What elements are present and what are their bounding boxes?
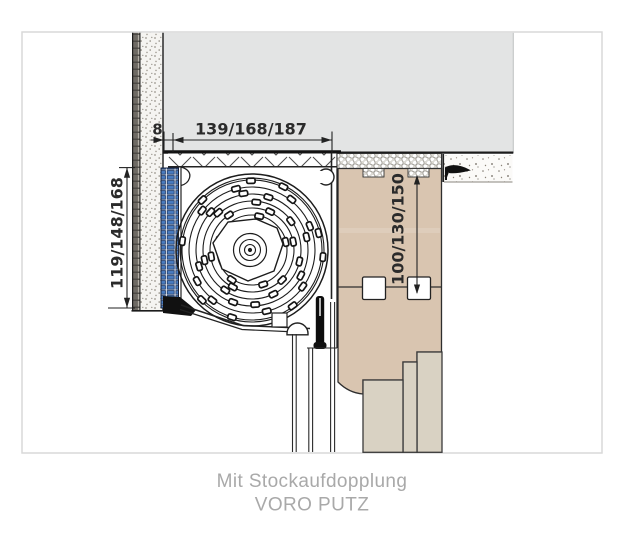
- end-clip-gap: [316, 171, 325, 183]
- anchor-band: [337, 154, 442, 169]
- plaster-reveal: [443, 154, 512, 182]
- caption-line-1: Mit Stockaufdopplung: [217, 471, 408, 492]
- technical-drawing: 8 139/168/187 119/148/168 100/130/150 Mi…: [0, 0, 624, 539]
- caption: Mit Stockaufdopplung VORO PUTZ: [217, 471, 408, 516]
- figure-root: 8 139/168/187 119/148/168 100/130/150 Mi…: [0, 0, 624, 539]
- anchor-notch: [408, 169, 429, 178]
- dimension-label-top: 139/168/187: [195, 120, 307, 139]
- dimension-label-left: 119/148/168: [108, 177, 127, 289]
- connector-block: [363, 277, 386, 300]
- caption-line-2: VORO PUTZ: [255, 495, 369, 516]
- dimension-label-offset: 8: [152, 121, 162, 139]
- connector-block: [408, 277, 431, 300]
- dimension-label-right: 100/130/150: [389, 173, 408, 285]
- box-top-insulation: [168, 154, 338, 167]
- box-side-insulation: [161, 168, 179, 308]
- exterior-wall: [132, 33, 165, 311]
- insulation-layer: [141, 33, 164, 311]
- anchor-notch: [363, 169, 384, 178]
- plaster-layer: [133, 33, 141, 311]
